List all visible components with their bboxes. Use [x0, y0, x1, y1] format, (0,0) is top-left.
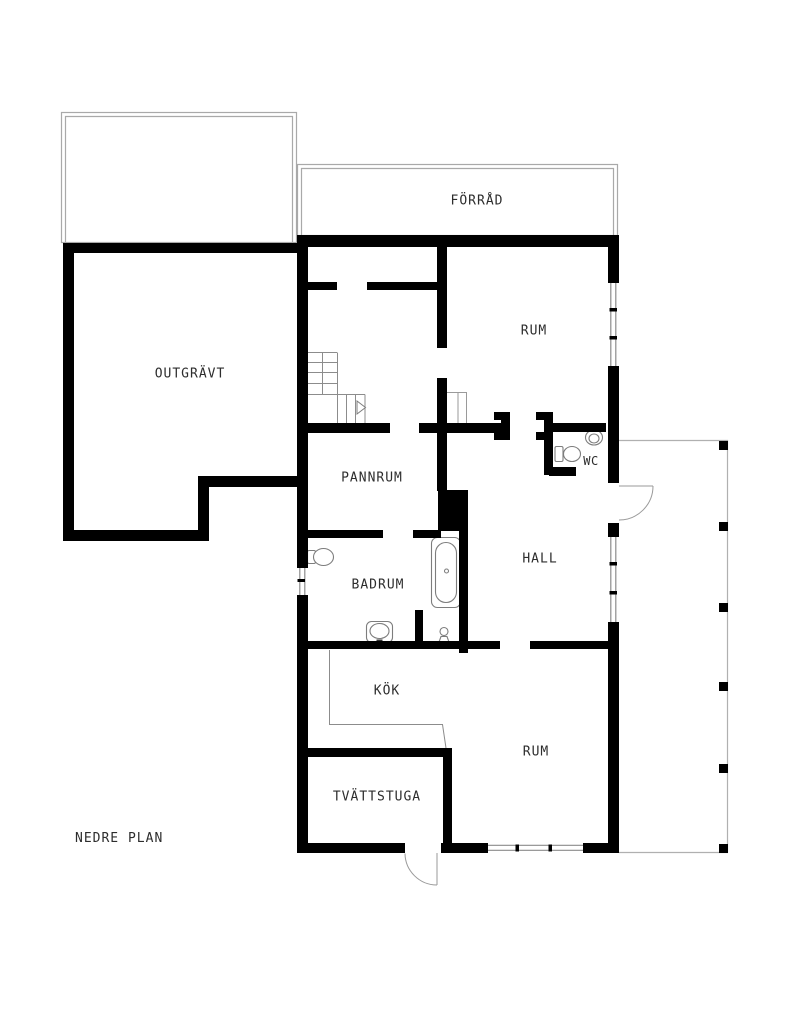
door-jamb — [536, 432, 544, 440]
wall-segment — [549, 467, 576, 476]
door-jamb — [494, 412, 502, 420]
wall-segment — [297, 641, 500, 649]
wall-segment — [443, 748, 452, 853]
pedestal-sink-icon — [437, 628, 451, 643]
wall-segment — [297, 235, 619, 247]
closet-icon — [446, 393, 467, 424]
kitchen-counter-line — [330, 650, 447, 748]
plan-title: NEDRE PLAN — [75, 831, 163, 846]
room-label-pannrum: PANNRUM — [341, 471, 403, 486]
wall-segment — [297, 843, 405, 853]
wall-segment — [297, 748, 452, 757]
stairs-icon — [308, 353, 366, 424]
wall-segment — [530, 641, 608, 649]
wall-segment — [297, 423, 390, 433]
toilet-icon — [308, 549, 334, 566]
wall-segment — [415, 610, 423, 649]
stair-direction-arrow — [357, 401, 366, 414]
door-jamb — [494, 432, 502, 440]
wall-segment — [413, 530, 441, 538]
wall-segment — [437, 378, 447, 491]
door-jamb — [544, 412, 553, 475]
terrace-outline — [619, 441, 728, 854]
toilet-icon — [555, 447, 581, 462]
window-icon — [610, 537, 618, 622]
room-label-badrum: BADRUM — [352, 578, 405, 593]
room-label-tvattstuga: TVÄTTSTUGA — [333, 790, 421, 805]
wall-segment — [583, 843, 619, 853]
chimney-block — [438, 490, 468, 531]
door-jamb — [536, 412, 544, 420]
sink-icon — [586, 430, 603, 445]
room-label-outgravt: OUTGRÄVT — [155, 367, 226, 382]
wall-segment — [297, 530, 383, 538]
wall-segment — [63, 530, 209, 541]
room-label-rum-upper: RUM — [521, 324, 547, 339]
wall-segment — [608, 235, 619, 283]
room-label-forrad: FÖRRÅD — [451, 194, 504, 209]
wall-segment — [297, 595, 308, 853]
wall-segment — [459, 531, 468, 653]
door-arc-icon — [619, 486, 653, 520]
wall-segment — [63, 243, 74, 541]
wall-segment — [198, 476, 303, 487]
sink-icon — [367, 622, 393, 643]
room-label-kok: KÖK — [374, 684, 400, 699]
plan-linework — [0, 0, 791, 1009]
floor-plan: FÖRRÅD OUTGRÄVT RUM PANNRUM WC HALL BADR… — [0, 0, 791, 1009]
wall-segment — [308, 282, 337, 290]
deck-outline — [62, 113, 297, 243]
window-icon — [298, 568, 306, 595]
wall-segment — [608, 622, 619, 853]
door-jamb — [501, 412, 510, 440]
room-label-rum-lower: RUM — [523, 745, 549, 760]
wall-segment — [437, 235, 447, 348]
wall-segment — [297, 235, 308, 568]
bathtub-icon — [432, 538, 461, 608]
room-label-wc: WC — [583, 454, 598, 468]
wall-segment — [553, 423, 606, 432]
wall-segment — [367, 282, 441, 290]
room-label-hall: HALL — [522, 552, 557, 567]
wall-segment — [63, 243, 308, 253]
wall-segment — [608, 366, 619, 483]
window-icon — [610, 283, 618, 366]
wall-segment — [419, 423, 502, 433]
terrace-post-icon — [719, 441, 728, 853]
door-arc-icon — [405, 853, 437, 885]
window-icon — [488, 845, 583, 852]
wall-segment — [608, 523, 619, 537]
